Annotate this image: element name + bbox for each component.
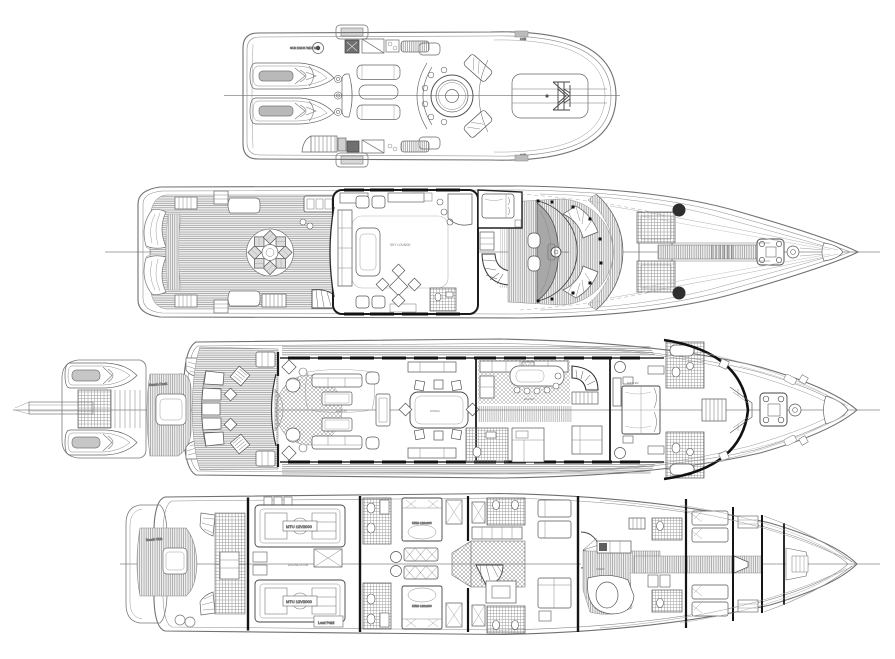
svg-text:ENGINE ROOM: ENGINE ROOM (288, 563, 309, 567)
svg-text:MTU 12V2000: MTU 12V2000 (286, 599, 313, 604)
svg-text:KING 120x200: KING 120x200 (412, 521, 432, 525)
svg-text:CREW: CREW (596, 567, 605, 571)
svg-text:KING 120x200: KING 120x200 (412, 604, 432, 608)
svg-text:Load Point: Load Point (318, 621, 334, 625)
svg-text:SALON: SALON (336, 409, 348, 413)
svg-text:MASTER: MASTER (627, 381, 639, 385)
svg-text:SKY LOUNGE: SKY LOUNGE (390, 243, 411, 247)
svg-text:WHEEL: WHEEL (560, 250, 570, 254)
svg-text:DINING: DINING (430, 409, 440, 413)
svg-text:CAB: CAB (520, 37, 526, 41)
svg-text:MTU 12V2000: MTU 12V2000 (286, 524, 313, 529)
svg-text:GALLEY: GALLEY (524, 397, 535, 401)
